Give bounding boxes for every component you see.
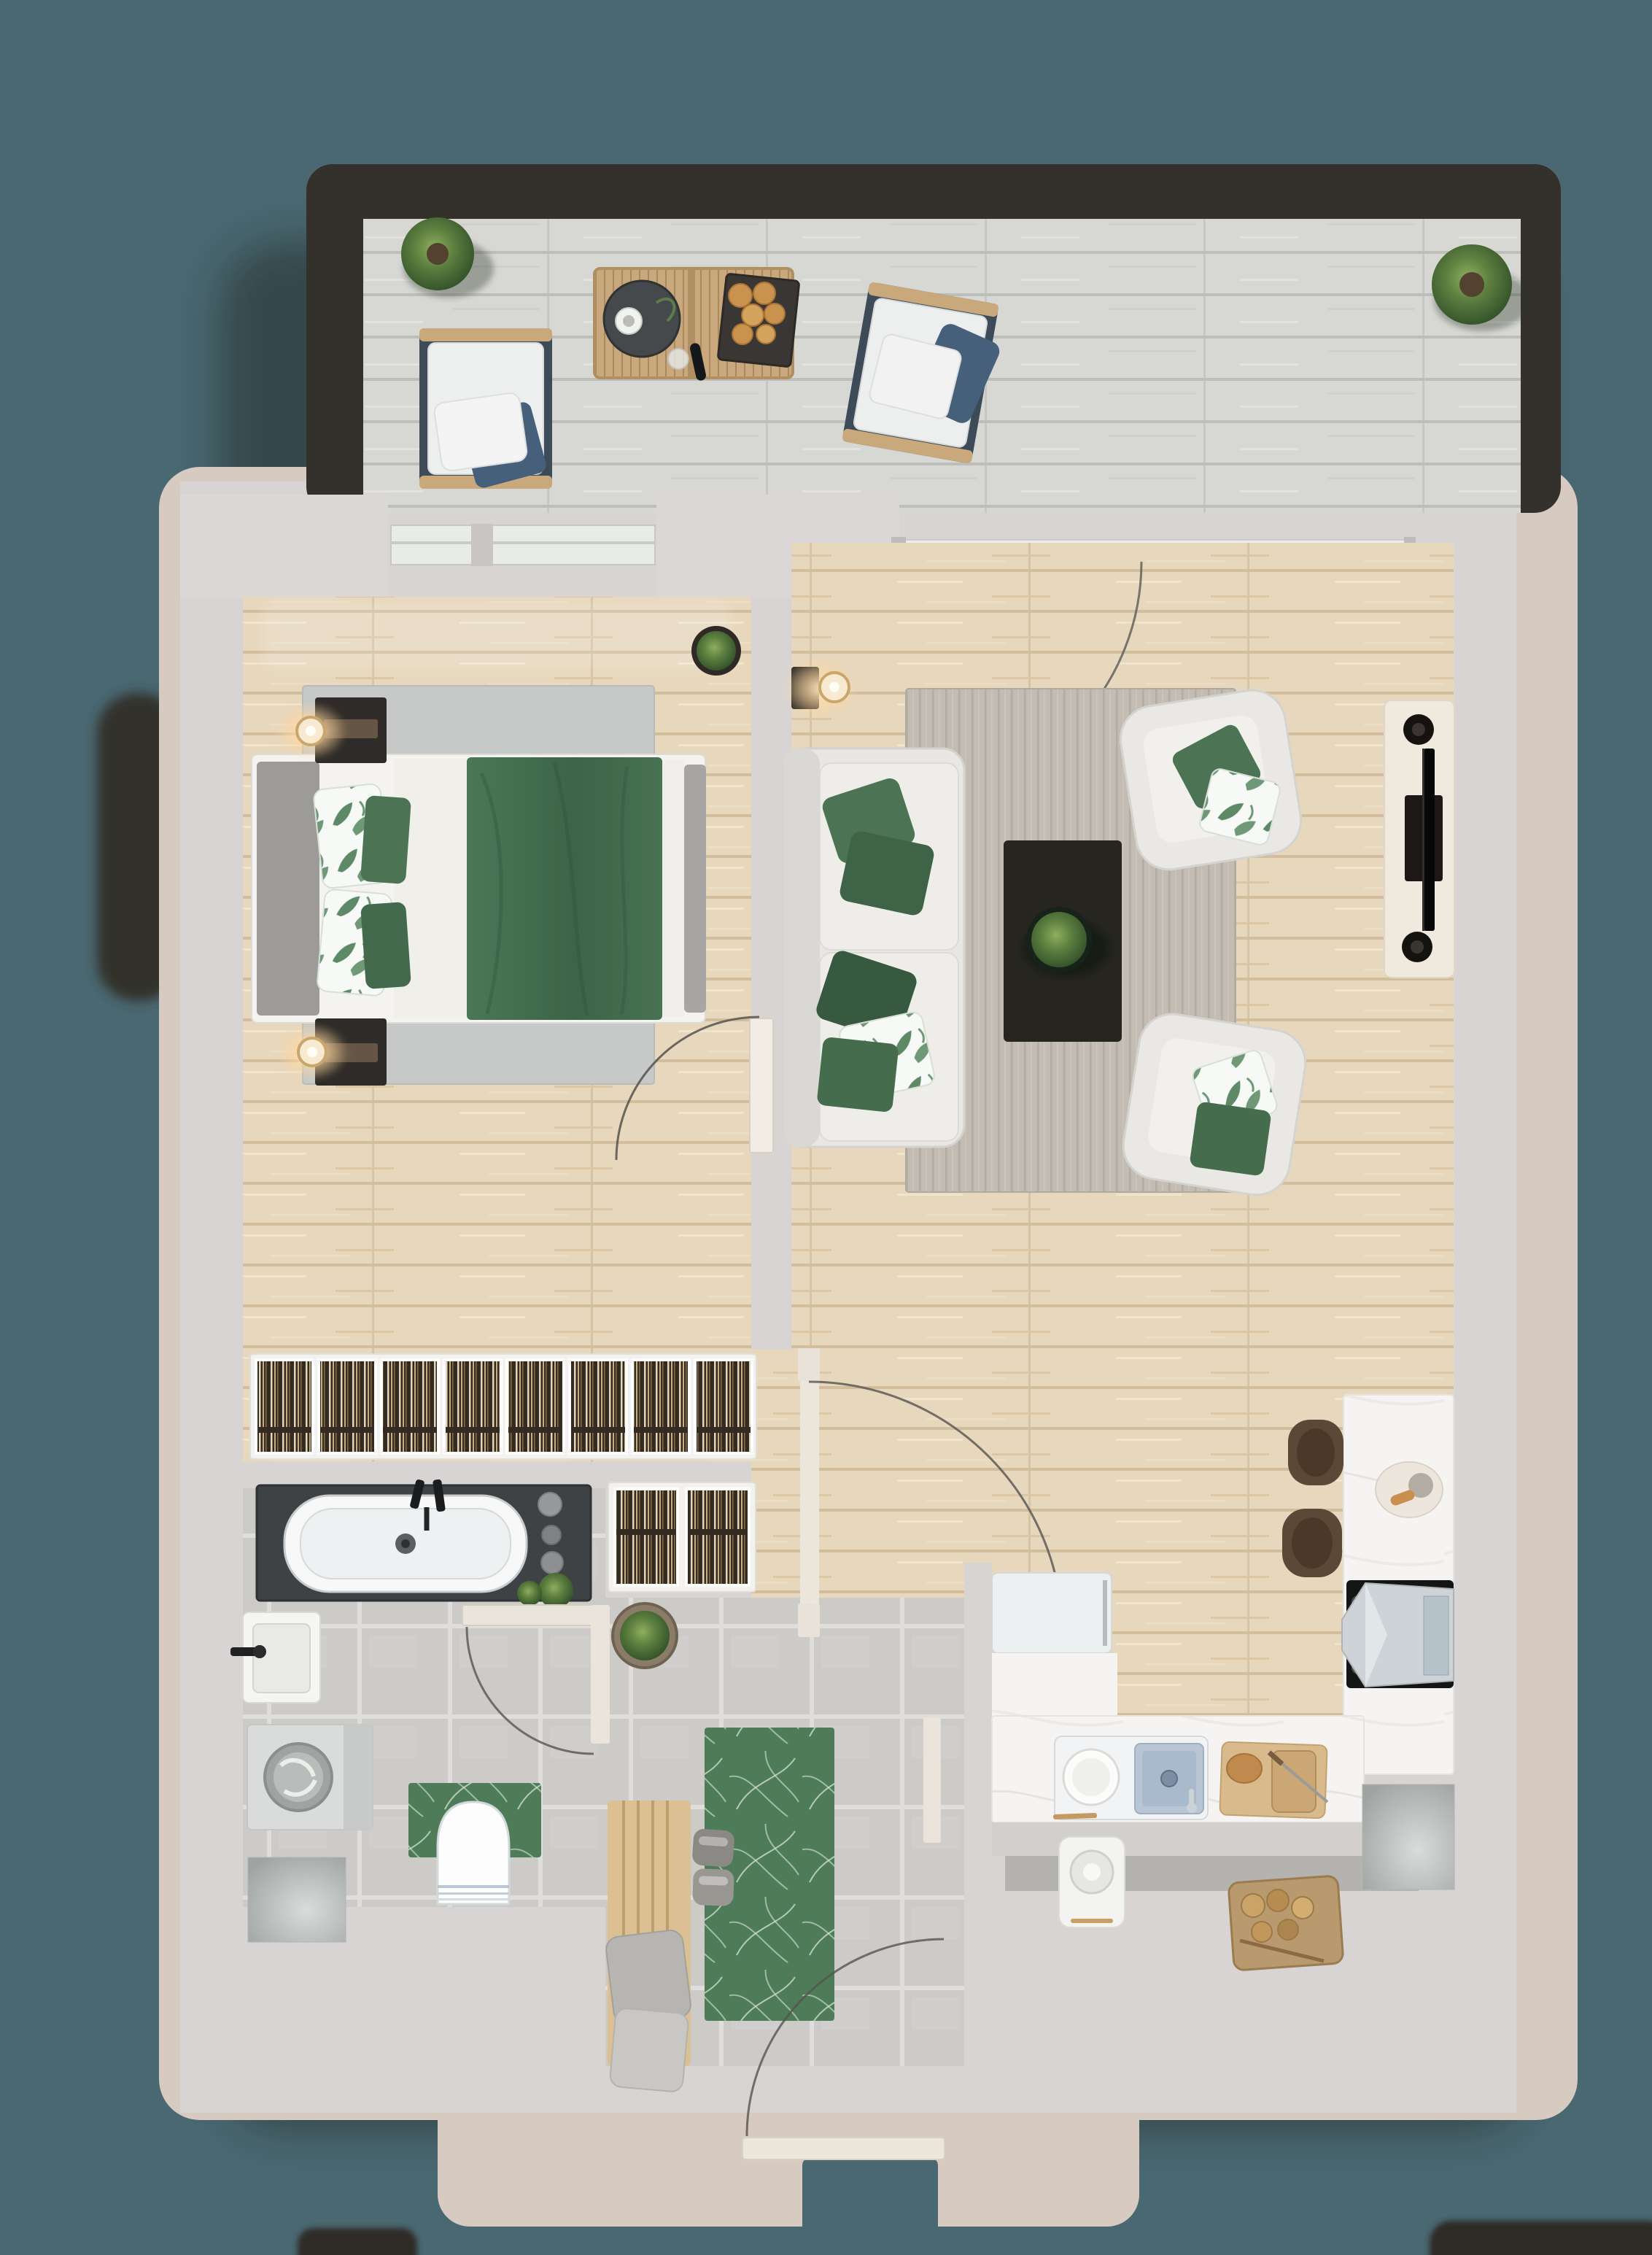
living-sconce-bulb <box>829 682 839 692</box>
sofa-backrest <box>783 749 820 1147</box>
wardrobe-cell-6 <box>570 1360 627 1453</box>
firewood-log-2 <box>1267 1890 1289 1911</box>
entry-opening-notch <box>802 2158 938 2255</box>
bathroom-duct <box>248 1857 346 1942</box>
kitchen-fridge <box>992 1573 1112 1653</box>
crate-bread-2 <box>753 282 775 304</box>
hall-closet-cell-1 <box>615 1489 678 1585</box>
hall-boot-1 <box>691 1828 734 1868</box>
boiler-dial-center <box>1083 1863 1101 1881</box>
range-hood-vent <box>1424 1596 1449 1675</box>
lounge-chair-1-wood-top <box>419 328 552 341</box>
toilet-bowl <box>438 1802 509 1904</box>
board-bread-1 <box>1227 1754 1262 1783</box>
bedroom-window-rail <box>391 541 655 544</box>
bar-stool-1-seat <box>1297 1428 1335 1477</box>
bed-duvet <box>467 757 662 1020</box>
bed-foot-bench <box>684 765 706 1013</box>
window-pier-left <box>180 495 388 598</box>
toilet-line-3 <box>438 1898 509 1900</box>
toilet-line-2 <box>438 1892 509 1895</box>
kitchen-duct <box>1362 1784 1454 1890</box>
bath-sink-faucet-head <box>253 1645 266 1658</box>
bench-slat-1 <box>622 1800 625 1936</box>
bathroom-door-jamb <box>591 1605 610 1744</box>
bath-plant-tuft-2 <box>517 1581 542 1606</box>
bath-plant-tuft-1 <box>538 1573 573 1608</box>
bath-sink-basin <box>253 1624 310 1693</box>
bath-jar-2 <box>542 1525 561 1544</box>
bed-foot-mattress <box>662 760 684 1017</box>
bathtub-drain-center <box>401 1539 410 1548</box>
bathroom-door-leaf <box>462 1605 594 1625</box>
tv-screen-edge <box>1422 749 1424 931</box>
boiler-trim <box>1071 1919 1113 1923</box>
wardrobe-cell-5 <box>507 1360 564 1453</box>
bed-pillow-green-2 <box>360 902 411 989</box>
lounge-chair-1-white-pillow <box>433 392 528 472</box>
sink-faucet-head <box>1187 1803 1197 1813</box>
crate-bread-1 <box>729 284 752 307</box>
sink-drying-plate-inner <box>1072 1758 1110 1796</box>
bath-jar-1 <box>538 1493 562 1516</box>
firewood-log-4 <box>1252 1922 1272 1942</box>
wardrobe-cell-1 <box>256 1360 313 1453</box>
crate-bread-6 <box>756 325 775 344</box>
kitchen-wall-strip <box>964 1563 992 2066</box>
sconce-bulb-bottom <box>307 1047 317 1057</box>
tv-speaker-bottom-cone <box>1411 940 1424 954</box>
wardrobe-cell-8 <box>695 1360 752 1453</box>
firewood-log-1 <box>1241 1894 1265 1917</box>
bench-slat-2 <box>637 1800 640 1936</box>
bench-cushion-2 <box>609 2008 689 2092</box>
firewood-log-3 <box>1292 1897 1314 1919</box>
balcony-table-cup-inner <box>623 315 635 327</box>
hallway-plant <box>620 1611 670 1660</box>
balcony-plant-right-pot <box>1459 272 1484 297</box>
lower-balcony-fragment-right <box>1430 2221 1652 2255</box>
bed-pillow-green-1 <box>360 795 411 884</box>
wardrobe-cell-7 <box>632 1360 689 1453</box>
balcony-plant-left-pot <box>427 243 449 265</box>
hall-boot-2-cuff <box>699 1876 728 1885</box>
apartment-floor-plan <box>0 0 1652 2255</box>
washing-machine-panel <box>344 1725 373 1830</box>
counter-plate <box>1376 1462 1443 1517</box>
balcony-glass <box>668 349 689 369</box>
kitchen-fridge-handle <box>1103 1580 1107 1646</box>
bench-slat-4 <box>666 1800 669 1936</box>
hall-boot-2 <box>692 1868 734 1906</box>
sofa-pillow-green-4 <box>816 1037 899 1113</box>
crate-bread-4 <box>764 303 785 324</box>
bench-slat-3 <box>651 1800 654 1936</box>
crate-bread-3 <box>742 304 764 326</box>
wardrobe-cell-4 <box>444 1360 501 1453</box>
hall-door-open-leaf <box>800 1382 819 1605</box>
entry-door-jamb <box>923 1717 941 1843</box>
bedroom-door-leaf <box>750 1018 773 1153</box>
bedroom-window-glass <box>391 525 655 565</box>
armchair-2-pillow-green <box>1189 1101 1272 1176</box>
crate-bread-5 <box>732 324 753 344</box>
window-light-streak <box>263 603 729 668</box>
entry-door-leaf <box>742 2138 945 2159</box>
lower-balcony-fragment-left <box>298 2228 417 2255</box>
bed-headboard <box>257 762 319 1016</box>
kitchen-floor-marble <box>992 1653 1117 1717</box>
sconce-bulb-top <box>306 726 316 736</box>
tv-speaker-top-cone <box>1412 723 1425 736</box>
firewood-log-5 <box>1278 1919 1298 1940</box>
bar-stool-2-seat <box>1292 1517 1333 1569</box>
bedroom-window-mullion <box>471 524 493 566</box>
scene-root <box>0 0 1652 2255</box>
coffee-table-plant <box>1031 912 1087 967</box>
sink-drain <box>1161 1771 1177 1787</box>
hall-closet-cell-2 <box>686 1489 749 1585</box>
bath-sink-faucet <box>230 1647 257 1656</box>
bedroom-plant <box>697 631 736 670</box>
toilet-line-1 <box>438 1885 509 1888</box>
floor-plan-stage <box>0 0 1652 2255</box>
wardrobe-cell-2 <box>319 1360 376 1453</box>
bath-jar-3 <box>541 1552 563 1574</box>
hall-door-jamb-bottom <box>798 1604 820 1637</box>
hall-door-jamb-top <box>798 1348 820 1382</box>
wardrobe-cell-3 <box>381 1360 438 1453</box>
tv-screen <box>1424 749 1435 931</box>
passage-floor <box>751 1350 792 1636</box>
